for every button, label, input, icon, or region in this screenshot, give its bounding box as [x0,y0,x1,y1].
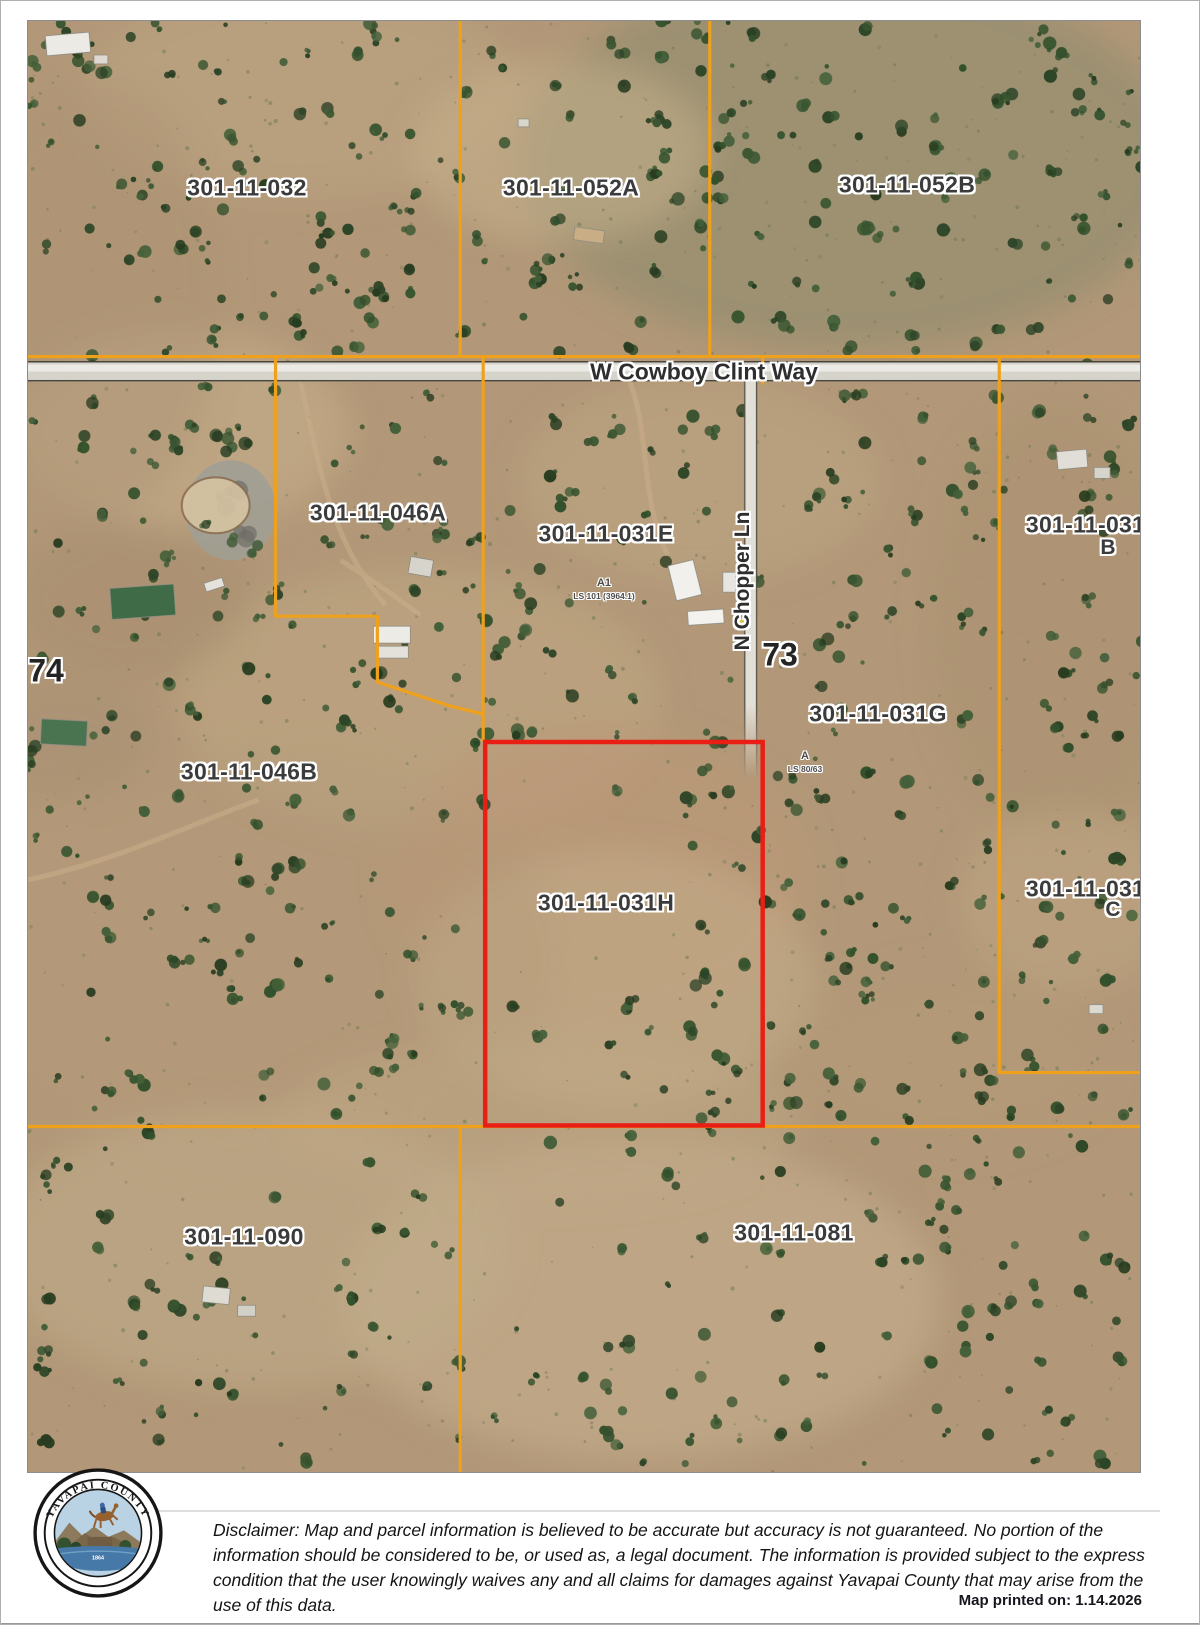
aerial-basemap [28,21,1140,1472]
disclaimer-line: information should be considered to be, … [213,1543,1153,1568]
disclaimer-line: condition that the user knowingly waives… [213,1568,1153,1593]
road-cowboy-clint-way [28,361,1140,381]
print-date: Map printed on: 1.14.2026 [959,1592,1142,1609]
svg-text:1864: 1864 [92,1556,104,1562]
map-viewport: 301-11-032301-11-052A301-11-052B301-11-0… [27,20,1141,1473]
county-seal: YAVAPAI COUNTY ARIZONA 1864 [33,1468,163,1598]
road-chopper-ln [744,379,757,776]
disclaimer-line: Disclaimer: Map and parcel information i… [213,1518,1153,1543]
county-seal-graphic: YAVAPAI COUNTY ARIZONA 1864 [33,1468,163,1598]
parcel-map-page: 301-11-032301-11-052A301-11-052B301-11-0… [0,0,1200,1625]
footer-divider [40,1510,1160,1512]
